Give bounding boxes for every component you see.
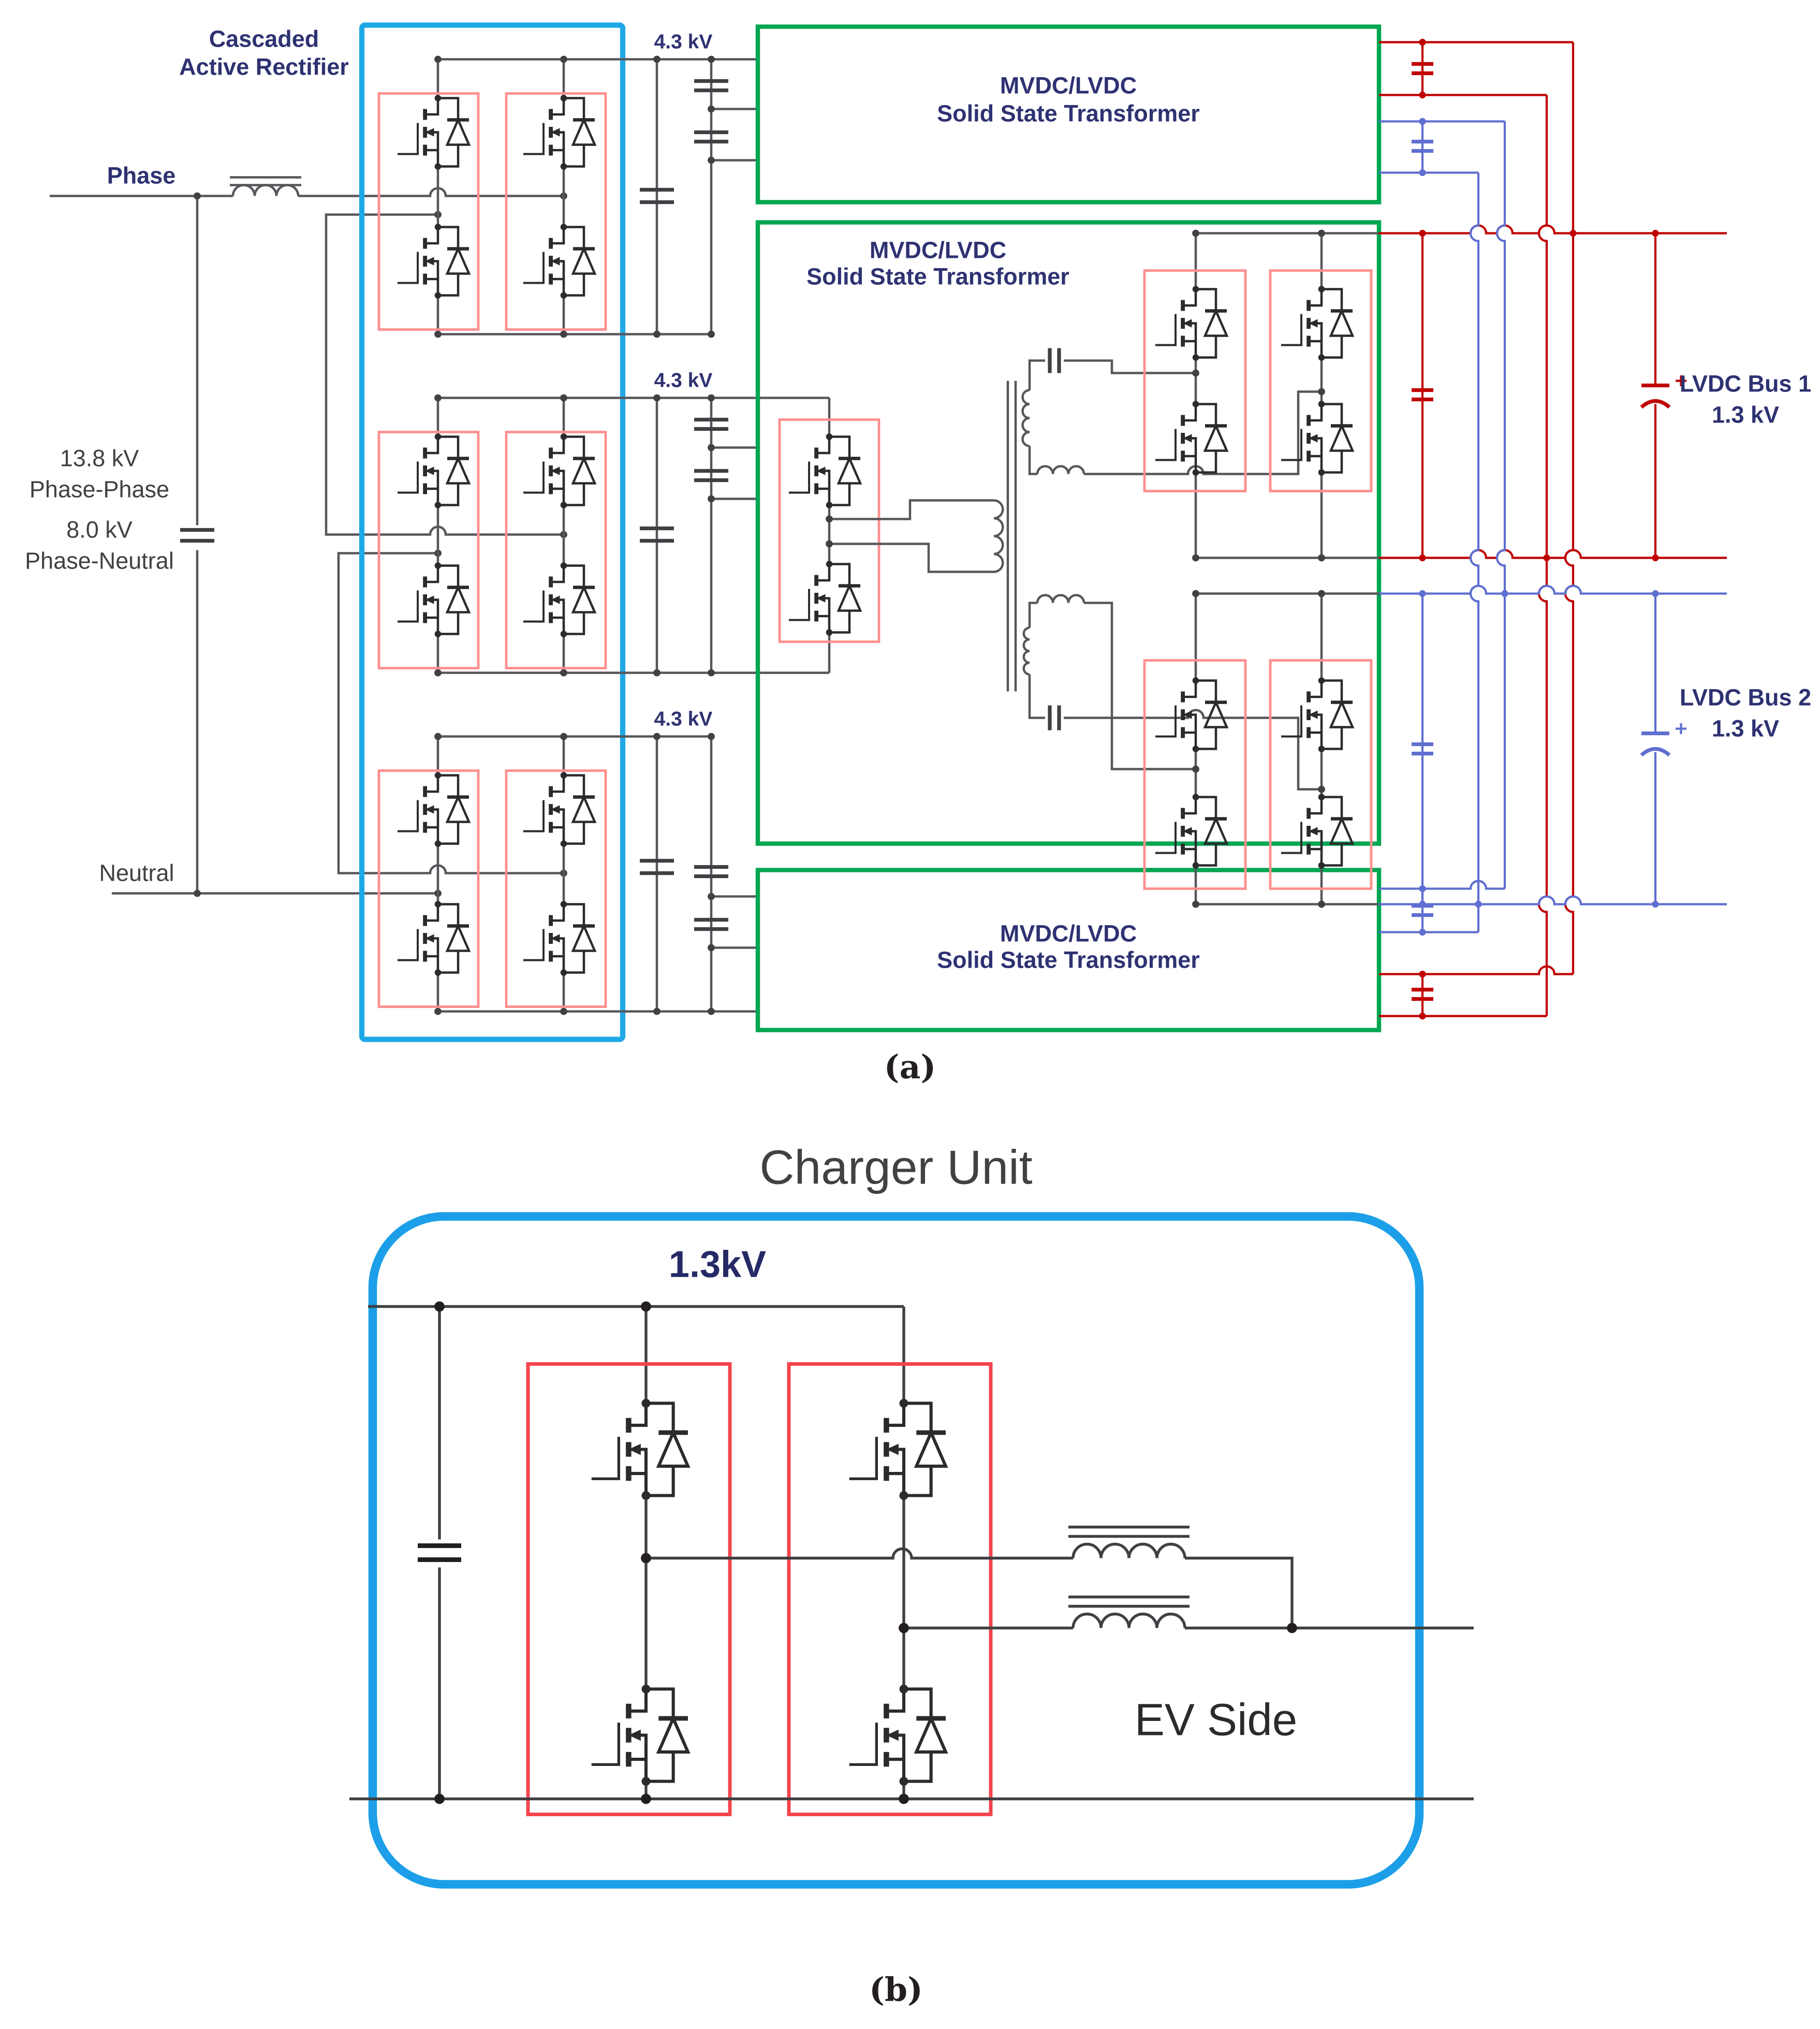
source-voltage-label: Phase-Neutral — [25, 548, 174, 574]
sst1-label: MVDC/LVDC — [1000, 72, 1137, 99]
caption-a: (a) — [884, 1048, 936, 1086]
bus1-label: 1.3 kV — [1712, 402, 1779, 428]
bus2-label: LVDC Bus 2 — [1680, 684, 1811, 711]
dc-link-voltage-label: 4.3 kV — [654, 370, 713, 392]
neutral-label: Neutral — [99, 860, 174, 886]
dc-link-voltage-label: 4.3 kV — [654, 31, 713, 53]
bus2-label: 1.3 kV — [1712, 716, 1779, 742]
source-voltage-label: 8.0 kV — [66, 517, 133, 543]
sst1-label: Solid State Transformer — [937, 100, 1200, 127]
ev-side-label: EV Side — [1135, 1695, 1297, 1745]
dc-voltage-label: 1.3kV — [669, 1244, 766, 1286]
sst2-label: MVDC/LVDC — [870, 237, 1006, 264]
source-voltage-label: 13.8 kV — [60, 445, 139, 472]
phase-label: Phase — [107, 163, 176, 189]
sst3-label: Solid State Transformer — [937, 947, 1200, 973]
cascaded-rectifier-label: Active Rectifier — [179, 54, 349, 80]
sst3-label: MVDC/LVDC — [1000, 921, 1137, 947]
dc-link-voltage-label: 4.3 kV — [654, 708, 713, 731]
source-voltage-label: Phase-Phase — [30, 476, 169, 503]
caption-b: (b) — [869, 1970, 923, 2009]
charger-unit-title: Charger Unit — [759, 1141, 1032, 1194]
circuit-diagram: Cascaded Active Rectifier Phase 13.8 kV … — [0, 0, 1820, 2029]
bus1-label: LVDC Bus 1 — [1680, 371, 1811, 397]
sst2-label: Solid State Transformer — [806, 264, 1069, 290]
cascaded-rectifier-label: Cascaded — [209, 26, 319, 52]
